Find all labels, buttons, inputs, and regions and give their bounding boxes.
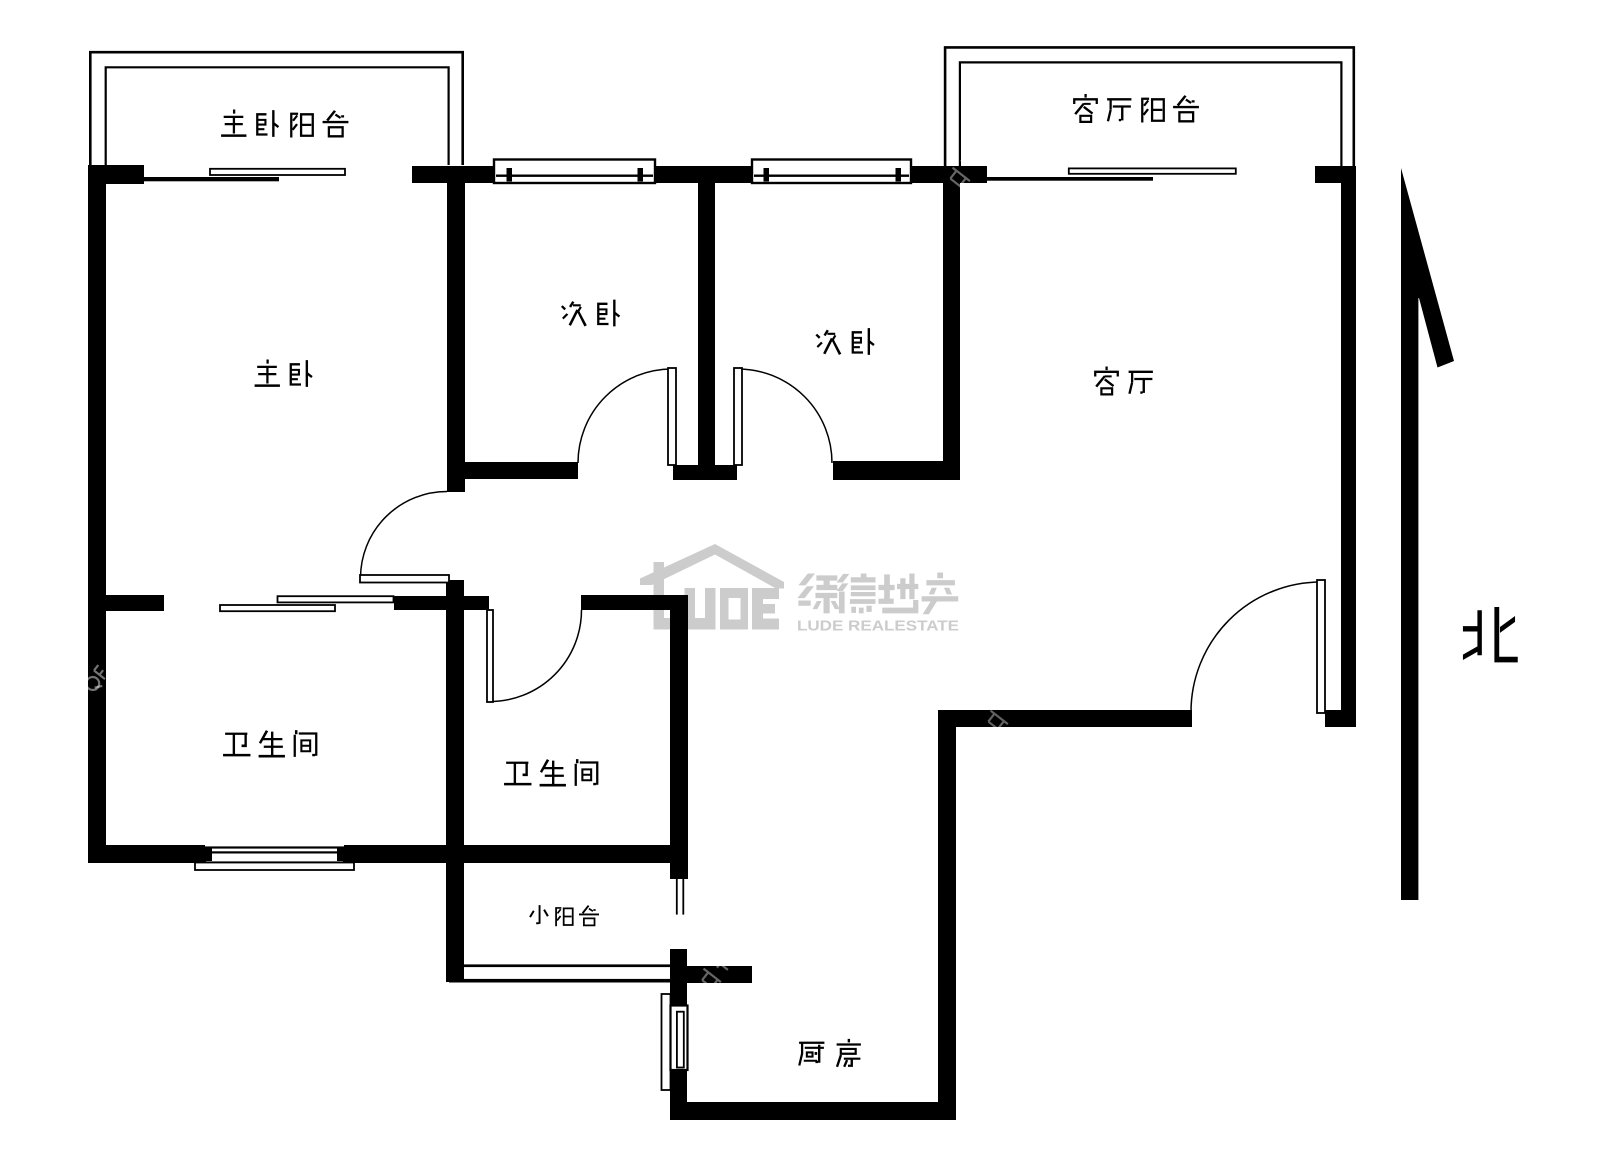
svg-text:LUDE REALESTATE: LUDE REALESTATE: [797, 619, 959, 635]
